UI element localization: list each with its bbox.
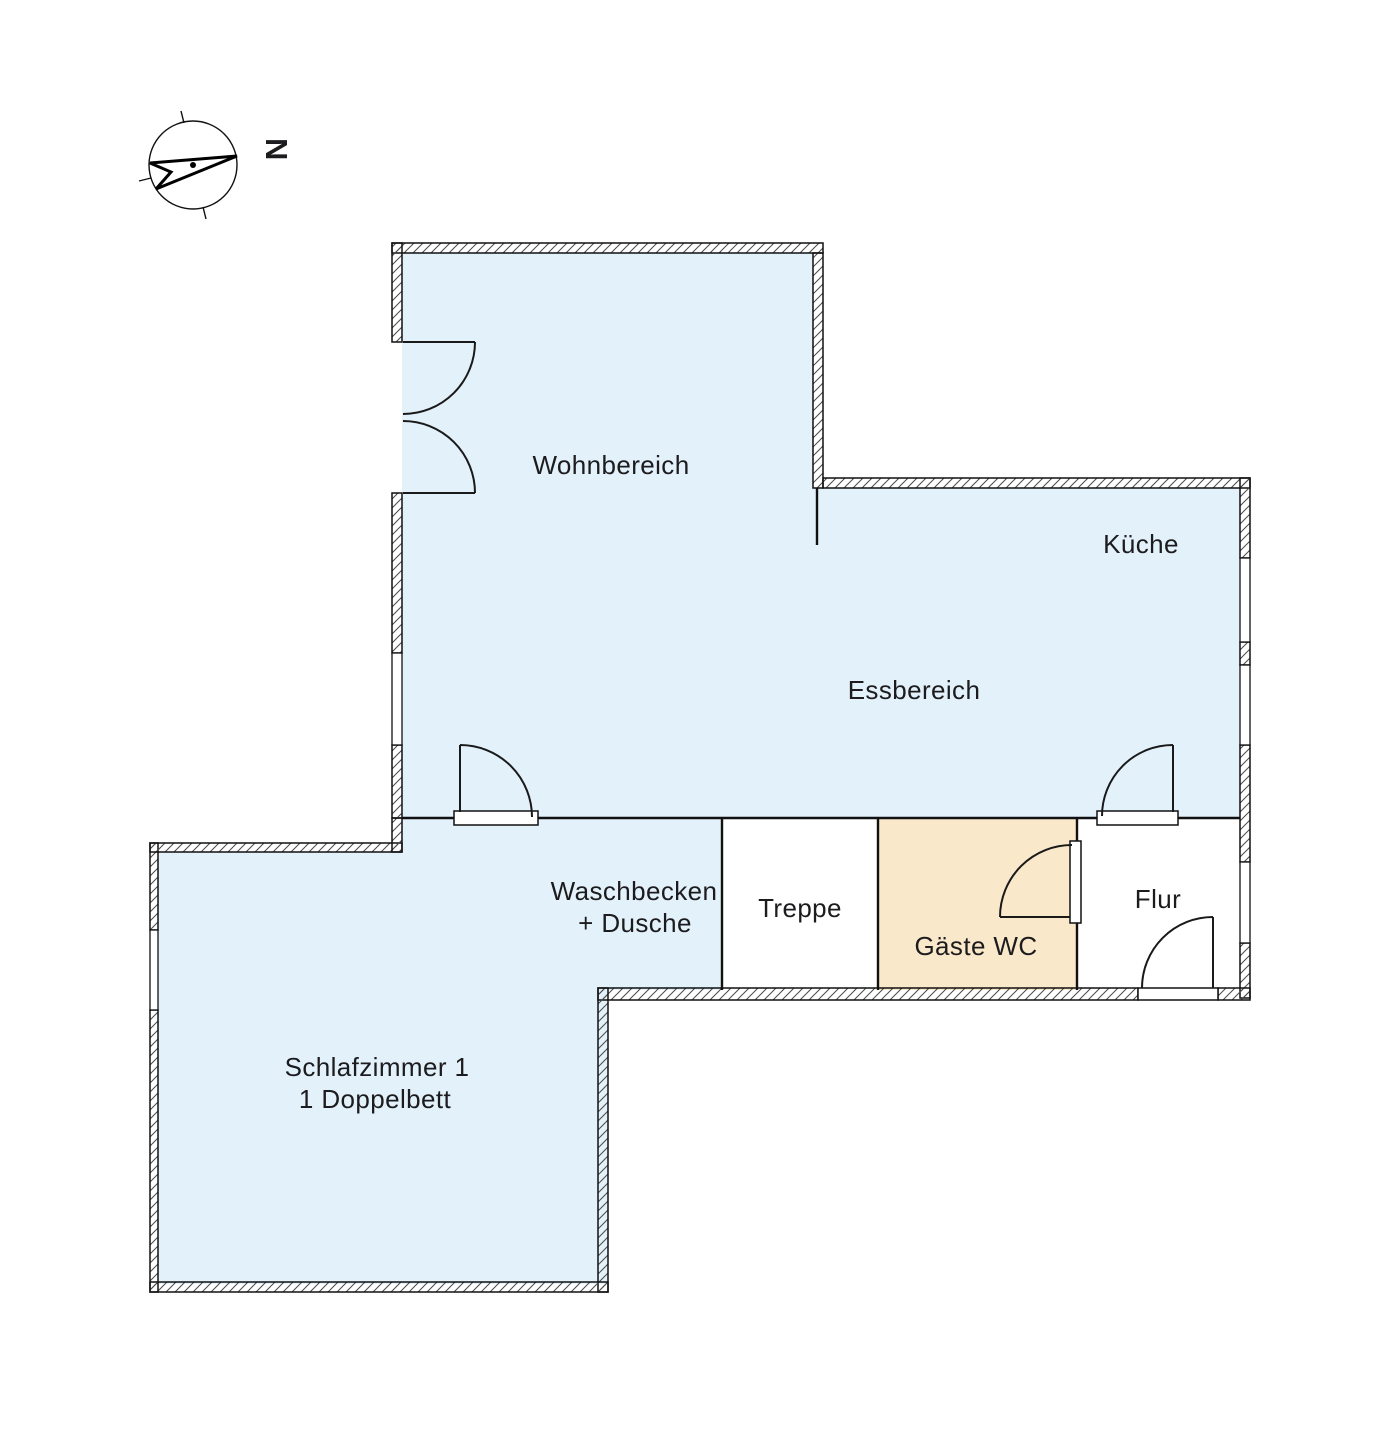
wall-top-bedroom: [150, 843, 402, 852]
wall-top-wohnbereich: [392, 243, 823, 253]
compass-tick-top: [181, 111, 184, 123]
wall-left-upper-3: [392, 745, 402, 818]
label-gaeste-wc: Gäste WC: [914, 931, 1037, 961]
wall-right-segment-3: [1240, 745, 1250, 862]
floorplan-drawing: Wohnbereich Küche Essbereich Waschbecken…: [0, 0, 1396, 1440]
label-wohnbereich: Wohnbereich: [532, 450, 689, 480]
label-kueche: Küche: [1103, 529, 1179, 559]
compass-north-label: N: [259, 138, 294, 160]
wall-right-wohnbereich: [813, 253, 823, 488]
room-fills: [158, 253, 1240, 1284]
wall-top-kueche: [823, 478, 1250, 488]
room-area-guest-wc: [878, 818, 1077, 990]
wall-bottom-bedroom: [150, 1282, 608, 1292]
floorplan-page: Wohnbereich Küche Essbereich Waschbecken…: [0, 0, 1396, 1440]
threshold-dining-washarea: [454, 811, 538, 825]
compass-tick-bottom: [203, 207, 206, 219]
threshold-dining-hallway: [1097, 811, 1178, 825]
window-kitchen-right-2: [1240, 665, 1250, 745]
wall-left-bedroom-1: [150, 843, 158, 930]
wall-left-bedroom-2: [150, 1010, 158, 1292]
window-dining-left: [392, 653, 402, 745]
compass-tick-left: [139, 178, 151, 181]
label-waschbecken-line2: + Dusche: [578, 908, 692, 938]
wall-step-right-bedroom: [598, 988, 608, 1292]
label-schlafzimmer-line1: Schlafzimmer 1: [285, 1052, 470, 1082]
label-flur: Flur: [1135, 884, 1181, 914]
window-kitchen-right-1: [1240, 558, 1250, 642]
compass-center-dot: [190, 162, 196, 168]
threshold-wc: [1070, 841, 1081, 923]
wall-right-segment-1: [1240, 478, 1250, 558]
label-treppe: Treppe: [758, 893, 842, 923]
label-schlafzimmer-line2: 1 Doppelbett: [299, 1084, 452, 1114]
north-arrow-icon: [150, 156, 237, 189]
threshold-entrance: [1138, 988, 1218, 1000]
wall-left-upper-1: [392, 243, 402, 342]
compass: N: [139, 111, 294, 219]
label-waschbecken-line1: Waschbecken: [551, 876, 718, 906]
wall-bottom-middle-1: [598, 988, 1138, 1000]
window-hallway-right: [1240, 862, 1250, 943]
label-essbereich: Essbereich: [848, 675, 981, 705]
wall-bottom-middle-2: [1218, 988, 1250, 1000]
wall-stub-bedroom-join: [392, 818, 402, 852]
wall-right-segment-2: [1240, 642, 1250, 665]
window-bedroom-left: [150, 930, 158, 1010]
wall-left-upper-2: [392, 493, 402, 653]
